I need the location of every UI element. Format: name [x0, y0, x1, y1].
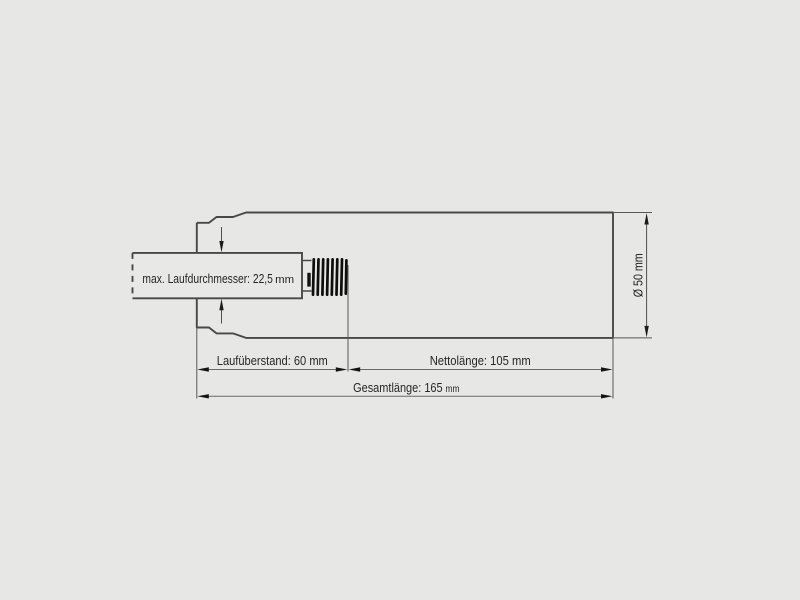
- svg-text:Laufüberstand: 60 mm: Laufüberstand: 60 mm: [217, 353, 328, 368]
- svg-text:Ø 50 mm: Ø 50 mm: [631, 253, 645, 297]
- svg-text:max. Laufdurchmesser: 22,5: max. Laufdurchmesser: 22,5: [142, 271, 273, 286]
- svg-text:Nettolänge: 105 mm: Nettolänge: 105 mm: [430, 353, 531, 368]
- svg-text:mm: mm: [275, 274, 294, 286]
- svg-text:mm: mm: [446, 383, 460, 395]
- svg-text:Gesamtlänge: 165: Gesamtlänge: 165: [353, 380, 443, 395]
